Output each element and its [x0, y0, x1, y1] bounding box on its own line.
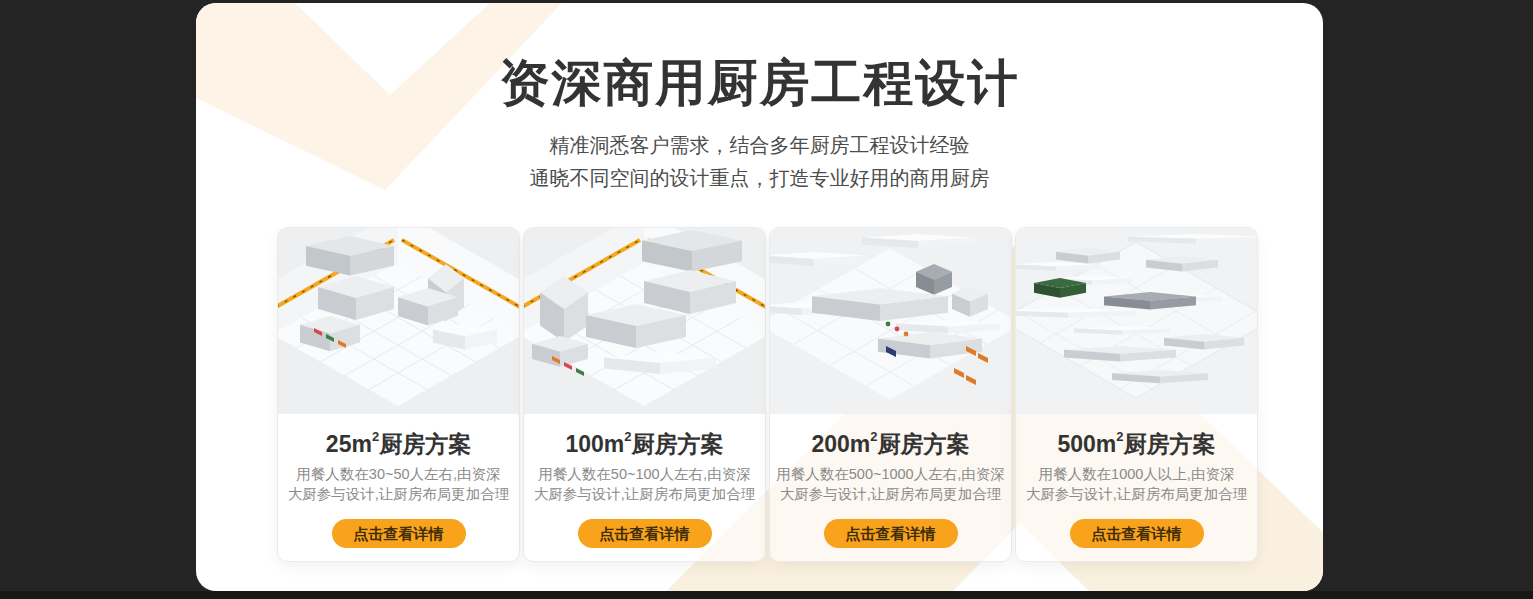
card-title: 500m2厨房方案 — [1016, 425, 1257, 458]
card-description: 用餐人数在1000人以上,由资深 大厨参与设计,让厨房布局更加合理 — [1016, 464, 1257, 504]
plan-cards-row: 25m2厨房方案 用餐人数在30~50人左右,由资深 大厨参与设计,让厨房布局更… — [277, 227, 1258, 562]
kitchen-plan-card-200sqm: 200m2厨房方案 用餐人数在500~1000人左右,由资深 大厨参与设计,让厨… — [769, 227, 1012, 562]
view-details-button[interactable]: 点击查看详情 — [332, 519, 466, 548]
kitchen-render-200sqm — [770, 228, 1011, 414]
card-title: 25m2厨房方案 — [278, 425, 519, 458]
bottom-dark-strip — [0, 591, 1533, 599]
kitchen-plan-card-500sqm: 500m2厨房方案 用餐人数在1000人以上,由资深 大厨参与设计,让厨房布局更… — [1015, 227, 1258, 562]
kitchen-render-25sqm — [278, 228, 519, 414]
view-details-button[interactable]: 点击查看详情 — [1070, 519, 1204, 548]
subtitle-line-1: 精准洞悉客户需求，结合多年厨房工程设计经验 — [196, 129, 1323, 162]
page-subtitle: 精准洞悉客户需求，结合多年厨房工程设计经验 通晓不同空间的设计重点，打造专业好用… — [196, 129, 1323, 195]
card-title: 100m2厨房方案 — [524, 425, 765, 458]
content-panel: 资深商用厨房工程设计 精准洞悉客户需求，结合多年厨房工程设计经验 通晓不同空间的… — [196, 3, 1323, 591]
view-details-button[interactable]: 点击查看详情 — [578, 519, 712, 548]
card-description: 用餐人数在30~50人左右,由资深 大厨参与设计,让厨房布局更加合理 — [278, 464, 519, 504]
card-description: 用餐人数在50~100人左右,由资深 大厨参与设计,让厨房布局更加合理 — [524, 464, 765, 504]
page-title: 资深商用厨房工程设计 — [196, 55, 1323, 113]
kitchen-plan-card-25sqm: 25m2厨房方案 用餐人数在30~50人左右,由资深 大厨参与设计,让厨房布局更… — [277, 227, 520, 562]
card-description: 用餐人数在500~1000人左右,由资深 大厨参与设计,让厨房布局更加合理 — [770, 464, 1011, 504]
kitchen-plan-card-100sqm: 100m2厨房方案 用餐人数在50~100人左右,由资深 大厨参与设计,让厨房布… — [523, 227, 766, 562]
kitchen-render-100sqm — [524, 228, 765, 414]
card-title: 200m2厨房方案 — [770, 425, 1011, 458]
view-details-button[interactable]: 点击查看详情 — [824, 519, 958, 548]
kitchen-render-500sqm — [1016, 228, 1257, 414]
subtitle-line-2: 通晓不同空间的设计重点，打造专业好用的商用厨房 — [196, 162, 1323, 195]
